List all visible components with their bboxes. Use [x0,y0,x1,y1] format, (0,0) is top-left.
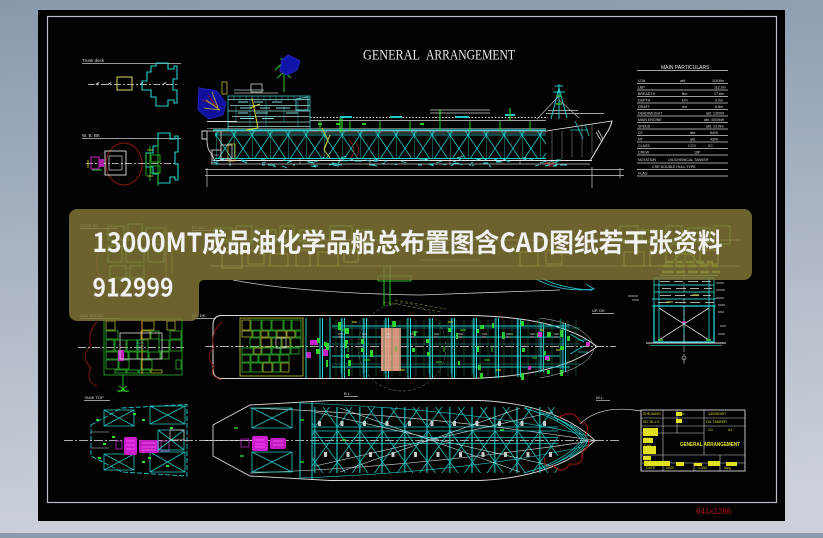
svg-text:CLASS: CLASS [638,144,650,148]
svg-text:Trunk deck: Trunk deck [82,58,105,63]
svg-text:Bm: Bm [682,92,687,96]
svg-text:DRAFT: DRAFT [638,105,651,109]
svg-text:118.8m: 118.8m [712,79,724,83]
svg-text:2009: 2009 [666,466,674,470]
svg-text:dm: dm [682,105,687,109]
svg-text:OIL/CHEMICAL TANKER: OIL/CHEMICAL TANKER [668,158,709,162]
svg-text:GENERAL: GENERAL [363,48,420,64]
svg-text:SPEED: SPEED [638,125,651,129]
svg-text:112.0m: 112.0m [714,86,726,90]
svg-text:GENERAL ARRANGEMENT: GENERAL ARRANGEMENT [680,442,741,448]
svg-text:NT: NT [638,138,644,142]
svg-text:16P: 16P [694,151,701,155]
svg-text:DEADWEIGHT: DEADWEIGHT [638,112,663,116]
svg-text:ARRANGEMENT: ARRANGEMENT [426,48,515,64]
svg-text:W.L.: W.L. [596,395,604,400]
svg-text:W. B. BK: W. B. BK [82,133,100,138]
svg-text:Dm: Dm [682,99,688,103]
svg-text:OIL TANKER: OIL TANKER [706,420,727,424]
svg-text:LBP: LBP [638,86,645,90]
svg-text:dwg: dwg [724,466,731,470]
svg-text:A1: A1 [728,428,732,432]
svg-text:9.0m: 9.0m [715,99,723,103]
svg-text:6.8m: 6.8m [715,105,723,109]
svg-text:abt. 13000t: abt. 13000t [706,112,724,116]
svg-text:NOTATION: NOTATION [638,158,656,162]
svg-text:ZHEJIANG: ZHEJIANG [643,412,661,416]
svg-text:13000DWT: 13000DWT [708,412,727,416]
svg-text:DEPTH: DEPTH [638,99,651,103]
svg-text:FLAG: FLAG [638,172,648,176]
svg-text:DATE: DATE [646,466,656,470]
svg-text:1:300: 1:300 [698,466,707,470]
svg-text:abt.: abt. [690,131,696,135]
svg-text:GT: GT [638,131,644,135]
svg-text:641x1286: 641x1286 [696,507,732,516]
svg-text:CSR DOUBLE HULL TYPE: CSR DOUBLE HULL TYPE [652,165,696,169]
svg-text:abt. 13.0kn: abt. 13.0kn [706,125,724,129]
svg-text:BREADTH: BREADTH [638,92,656,96]
svg-text:8400: 8400 [710,131,718,135]
svg-text:abt.: abt. [680,79,686,83]
svg-text:17.6m: 17.6m [714,92,724,96]
svg-text:1/1: 1/1 [708,428,713,432]
svg-text:UP. DK: UP. DK [592,308,605,313]
svg-text:B.L.: B.L. [344,391,351,396]
svg-text:LOA: LOA [638,79,646,83]
svg-text:MAIN ENGINE: MAIN ENGINE [638,118,662,122]
svg-text:SD 35-1.0: SD 35-1.0 [643,420,659,424]
svg-text:ZC: ZC [708,144,713,148]
svg-text:abt.: abt. [690,138,696,142]
svg-text:CREW: CREW [638,151,650,155]
svg-text:TANK TOP: TANK TOP [84,395,104,400]
svg-text:abt. 4000kW: abt. 4000kW [704,118,725,122]
svg-text:4300: 4300 [710,138,718,142]
svg-text:CCS: CCS [688,144,696,148]
